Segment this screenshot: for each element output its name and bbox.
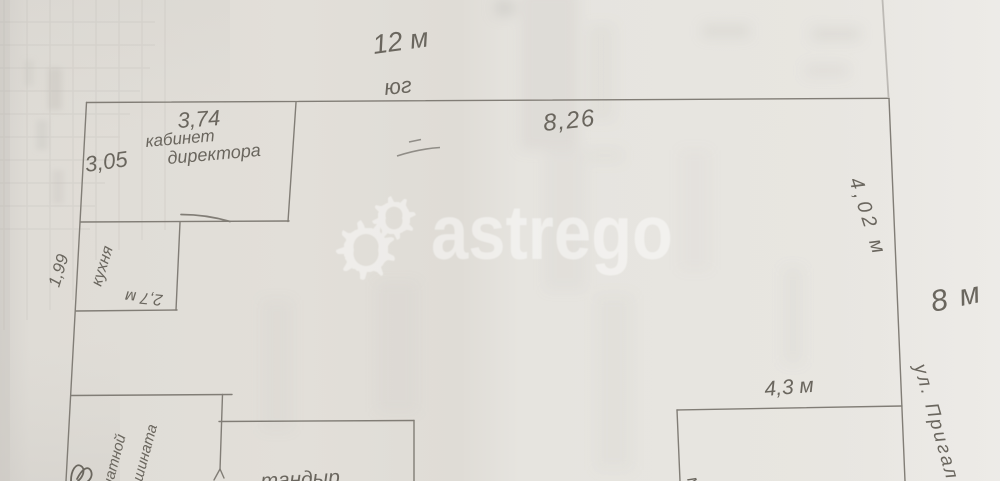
svg-text:юг: юг [383, 72, 413, 100]
svg-text:8,26: 8,26 [542, 105, 597, 137]
svg-text:4,3 м: 4,3 м [763, 374, 814, 401]
svg-text:astrego: astrego [431, 191, 673, 276]
